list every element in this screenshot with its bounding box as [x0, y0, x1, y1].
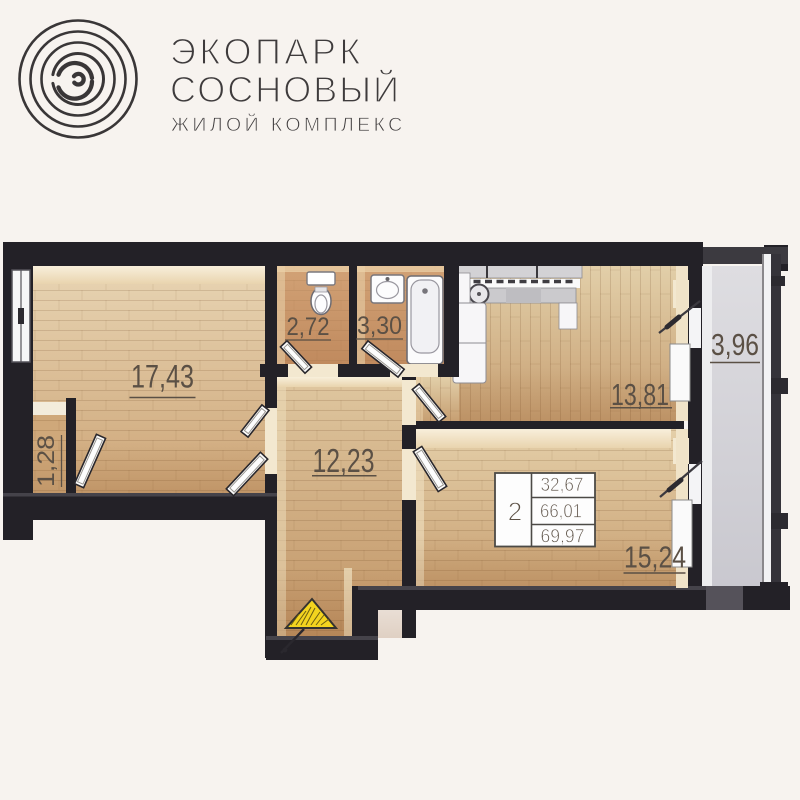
svg-text:ЖИЛОЙ КОМПЛЕКС: ЖИЛОЙ КОМПЛЕКС [171, 112, 406, 136]
svg-text:17,43: 17,43 [131, 359, 194, 395]
svg-text:2,72: 2,72 [287, 313, 330, 341]
svg-text:ЭКОПАРК: ЭКОПАРК [170, 31, 364, 72]
svg-text:12,23: 12,23 [313, 442, 375, 479]
svg-text:2: 2 [508, 497, 522, 527]
svg-text:3,96: 3,96 [711, 327, 759, 362]
svg-text:1,28: 1,28 [33, 435, 60, 487]
svg-text:15,24: 15,24 [624, 540, 686, 575]
svg-text:СОСНОВЫЙ: СОСНОВЫЙ [170, 68, 401, 110]
svg-text:69,97: 69,97 [541, 526, 585, 548]
svg-text:66,01: 66,01 [540, 501, 582, 523]
svg-text:13,81: 13,81 [611, 377, 669, 412]
svg-text:32,67: 32,67 [541, 474, 584, 496]
svg-text:3,30: 3,30 [357, 312, 402, 340]
